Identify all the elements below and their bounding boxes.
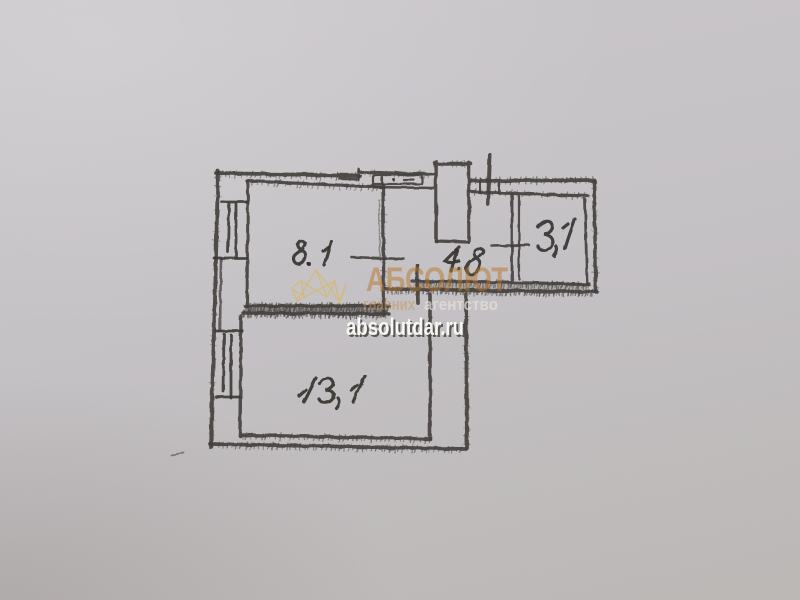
svg-text:АБСОЛЮТ: АБСОЛЮТ (366, 261, 508, 299)
svg-text:агентство: агентство (424, 295, 498, 314)
svg-text:главних: главних (363, 295, 415, 314)
svg-text:absolutdar.ru: absolutdar.ru (346, 314, 464, 341)
